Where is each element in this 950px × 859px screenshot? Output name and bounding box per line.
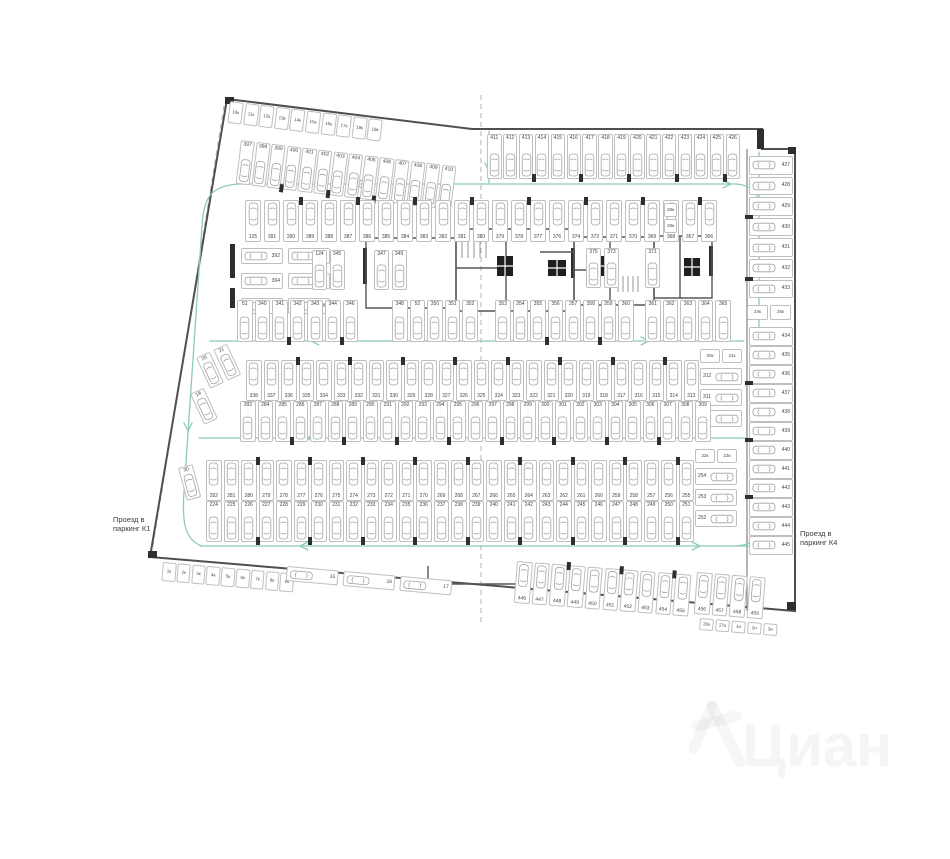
column-marker	[657, 437, 661, 445]
column-marker	[340, 337, 344, 345]
stall-number: 15к	[309, 120, 316, 125]
stall-number: 228	[280, 503, 288, 508]
car-icon	[528, 362, 539, 386]
stall-layer: 10к11к12к13к14к15к16к17к18к19к3973983994…	[0, 0, 950, 859]
stall-number: 409	[429, 165, 438, 171]
car-icon	[700, 316, 711, 340]
car-icon	[616, 153, 627, 177]
parking-stall: 124	[312, 250, 327, 290]
storage-stall: 27к	[715, 619, 730, 632]
car-icon	[429, 316, 440, 340]
parking-stall: 285	[275, 401, 291, 442]
car-icon	[641, 573, 654, 598]
parking-stall: 296	[468, 401, 484, 442]
car-icon	[557, 416, 568, 440]
stall-number: 317	[617, 394, 625, 399]
stall-number: 276	[315, 494, 323, 499]
column-marker	[571, 457, 575, 465]
car-icon	[208, 516, 219, 540]
stall-number: 21к	[729, 354, 736, 359]
car-icon	[476, 362, 487, 386]
stall-number: 291	[384, 403, 392, 408]
parking-stall: 229	[294, 501, 310, 542]
stall-number: 424	[697, 136, 705, 141]
stall-number: 360	[622, 302, 630, 307]
parking-stall: 243	[539, 501, 555, 542]
stall-number: 420	[633, 136, 641, 141]
storage-stall: 8к	[265, 571, 280, 591]
stall-number: 10к	[232, 110, 239, 115]
stall-number: 256	[665, 494, 673, 499]
stall-number: 372	[591, 235, 599, 240]
car-icon	[628, 462, 639, 486]
parking-stall: 371	[645, 248, 660, 288]
car-icon	[628, 202, 639, 226]
storage-stall: 11к	[243, 103, 260, 127]
car-icon	[752, 445, 776, 455]
stall-number: 451	[606, 603, 615, 609]
stall-number: 224	[210, 503, 218, 508]
stall-number: 313	[687, 394, 695, 399]
stall-number: 454	[659, 607, 668, 613]
parking-stall: 268	[451, 460, 467, 501]
car-icon	[348, 462, 359, 486]
stall-number: 229	[297, 503, 305, 508]
parking-stall: 379	[492, 200, 508, 242]
stall-number: 28к	[667, 208, 674, 213]
parking-stall: 284	[258, 401, 274, 442]
column-marker	[527, 197, 531, 205]
parking-stall: 371	[606, 200, 622, 242]
car-icon	[487, 416, 498, 440]
parking-stall: 352	[462, 300, 478, 342]
stall-number: 288	[331, 403, 339, 408]
stall-number: 379	[496, 235, 504, 240]
car-icon	[330, 416, 341, 440]
parking-stall: 282	[206, 460, 222, 501]
column-marker	[518, 457, 522, 465]
driveway-label-k1: Проезд в паркинг К1	[113, 515, 177, 534]
parking-stall: 327	[439, 360, 455, 401]
car-icon	[633, 362, 644, 386]
car-icon	[584, 153, 595, 177]
column-marker	[611, 357, 615, 365]
stall-number: 259	[612, 494, 620, 499]
car-icon	[401, 462, 412, 486]
parking-stall: 416	[567, 134, 582, 179]
stall-number: 456	[697, 607, 706, 613]
column-marker	[500, 437, 504, 445]
car-icon	[457, 202, 468, 226]
stall-number: 232	[350, 503, 358, 508]
car-icon	[610, 416, 621, 440]
parking-stall: 452	[620, 569, 639, 612]
car-icon	[598, 362, 609, 386]
car-icon	[686, 362, 697, 386]
column-marker	[745, 495, 753, 499]
stall-number: 298	[506, 403, 514, 408]
stall-number: 22к	[702, 454, 709, 459]
car-icon	[681, 516, 692, 540]
car-icon	[248, 362, 259, 386]
parking-stall: 340	[255, 300, 271, 342]
car-icon	[226, 516, 237, 540]
car-icon	[488, 516, 499, 540]
stall-number: 377	[534, 235, 542, 240]
parking-stall: 367	[682, 200, 698, 242]
stall-number: 303	[594, 403, 602, 408]
stall-number: 279	[262, 494, 270, 499]
stall-number: 437	[782, 391, 790, 396]
parking-stall: 278	[276, 460, 292, 501]
stall-number: 405	[367, 158, 376, 164]
car-icon	[682, 316, 693, 340]
stall-number: 371	[648, 250, 656, 255]
car-icon	[366, 516, 377, 540]
parking-stall: 273	[364, 460, 380, 501]
stall-number: 12к	[263, 114, 270, 119]
car-icon	[383, 516, 394, 540]
stall-number: 457	[715, 609, 724, 615]
stall-number: 389	[306, 235, 314, 240]
stall-number: 422	[665, 136, 673, 141]
parking-stall: 244	[556, 501, 572, 542]
car-icon	[575, 416, 586, 440]
stall-number: 244	[560, 503, 568, 508]
parking-stall: 361	[645, 300, 661, 342]
stall-number: 433	[782, 286, 790, 291]
car-icon	[704, 202, 715, 226]
stall-number: 24к	[754, 310, 761, 315]
stall-number: 348	[396, 302, 404, 307]
stall-number: 343	[311, 302, 319, 307]
stall-number: 432	[782, 266, 790, 271]
car-icon	[362, 202, 373, 226]
car-icon	[620, 316, 631, 340]
car-icon	[752, 243, 776, 253]
parking-stall: 231	[329, 501, 345, 542]
stall-number: 400	[289, 148, 298, 154]
parking-stall: 324	[491, 360, 507, 401]
car-icon	[394, 264, 405, 288]
parking-stall: 236	[416, 501, 432, 542]
parking-stall: 347	[374, 250, 389, 290]
column-marker	[623, 457, 627, 465]
parking-stall: 249	[644, 501, 660, 542]
car-icon	[394, 316, 405, 340]
stall-number: 442	[782, 486, 790, 491]
stall-number: 349	[395, 252, 403, 257]
parking-stall: 305	[625, 401, 641, 442]
car-icon	[441, 362, 452, 386]
stall-number: 458	[733, 610, 742, 616]
parking-stall: 346	[343, 300, 359, 342]
parking-stall: 373	[604, 248, 619, 288]
car-icon	[365, 416, 376, 440]
stall-number: 290	[366, 403, 374, 408]
column-marker	[356, 197, 360, 205]
car-icon	[752, 483, 776, 493]
column-marker	[308, 457, 312, 465]
car-icon	[715, 414, 739, 424]
parking-stall: 250	[661, 501, 677, 542]
stall-number: 369	[648, 235, 656, 240]
stall-number: 294	[436, 403, 444, 408]
car-icon	[750, 578, 763, 603]
stall-number: 309	[699, 403, 707, 408]
storage-stall: 25к	[770, 305, 791, 320]
stall-number: 245	[577, 503, 585, 508]
stall-number: 361	[649, 302, 657, 307]
stall-number: 26к	[703, 622, 710, 627]
parking-stall: 431	[749, 238, 793, 257]
stall-number: 258	[630, 494, 638, 499]
stall-number: 436	[782, 372, 790, 377]
parking-floor-plan: Циан	[0, 0, 950, 859]
car-icon	[283, 362, 294, 386]
parking-stall: 435	[749, 346, 793, 365]
car-icon	[563, 362, 574, 386]
parking-stall: 437	[749, 384, 793, 403]
car-icon	[552, 202, 563, 226]
column-marker	[623, 537, 627, 545]
stall-number: 293	[419, 403, 427, 408]
parking-stall: 389	[302, 200, 318, 242]
car-icon	[752, 426, 776, 436]
car-icon	[552, 153, 563, 177]
car-icon	[330, 169, 344, 194]
parking-stall: 277	[294, 460, 310, 501]
car-icon	[647, 316, 658, 340]
storage-stall: 24к	[747, 305, 768, 320]
parking-stall: 374	[568, 200, 584, 242]
parking-stall: 413	[519, 134, 534, 179]
stall-number: 394	[272, 279, 280, 284]
stall-number: 344	[329, 302, 337, 307]
stall-number: 252	[698, 516, 706, 521]
car-icon	[331, 462, 342, 486]
car-icon	[257, 316, 268, 340]
stall-number: 434	[782, 334, 790, 339]
parking-stall: 451	[602, 568, 621, 611]
parking-stall: 281	[224, 460, 240, 501]
stall-number: 255	[682, 494, 690, 499]
car-icon	[588, 569, 601, 594]
parking-stall: 312	[700, 368, 742, 385]
parking-stall: 290	[363, 401, 379, 442]
car-icon	[419, 202, 430, 226]
stall-number: 320	[565, 394, 573, 399]
stall-number: 16	[386, 580, 392, 585]
parking-stall: 299	[520, 401, 536, 442]
stall-number: 330	[390, 394, 398, 399]
car-icon	[284, 164, 298, 189]
car-icon	[546, 362, 557, 386]
parking-stall: 286	[293, 401, 309, 442]
parking-stall: 382	[435, 200, 451, 242]
stall-number: 340	[258, 302, 266, 307]
column-marker	[745, 438, 753, 442]
car-icon	[752, 263, 776, 273]
parking-stall: 455	[673, 573, 692, 616]
parking-stall: 445	[749, 536, 793, 555]
car-icon	[402, 579, 427, 591]
storage-stall: 3н	[763, 623, 778, 636]
parking-stall: 415	[551, 134, 566, 179]
stall-number: 51	[242, 302, 248, 307]
stall-number: 7к	[255, 577, 260, 582]
storage-stall: 13к	[274, 107, 291, 131]
column-marker	[287, 337, 291, 345]
parking-stall: 423	[678, 134, 693, 179]
stall-number: 13к	[278, 116, 285, 121]
car-icon	[345, 316, 356, 340]
stall-number: 272	[385, 494, 393, 499]
parking-stall: 358	[583, 300, 599, 342]
stall-number: 410	[444, 167, 453, 173]
car-icon	[195, 396, 215, 422]
stall-number: 297	[489, 403, 497, 408]
stall-number: 312	[703, 374, 711, 379]
parking-stall: 369	[644, 200, 660, 242]
car-icon	[752, 222, 776, 232]
parking-stall: 345	[330, 250, 345, 290]
stall-number: 124	[315, 252, 323, 257]
car-icon	[752, 181, 776, 191]
stall-number: 374	[572, 235, 580, 240]
stall-number: 253	[698, 495, 706, 500]
car-icon	[382, 416, 393, 440]
car-icon	[453, 462, 464, 486]
parking-stall: 448	[549, 564, 568, 607]
stall-number: 324	[495, 394, 503, 399]
parking-stall: 444	[749, 517, 793, 536]
stall-number: 384	[401, 235, 409, 240]
parking-stall: 298	[503, 401, 519, 442]
parking-stall: 357	[565, 300, 581, 342]
storage-stall: 2к	[176, 563, 191, 583]
column-marker	[571, 537, 575, 545]
parking-stall: 420	[630, 134, 645, 179]
stall-number: 302	[576, 403, 584, 408]
stall-number: 254	[698, 474, 706, 479]
column-marker	[745, 381, 753, 385]
stall-number: 453	[641, 606, 650, 612]
parking-stall: 320	[561, 360, 577, 401]
stall-number: 345	[333, 252, 341, 257]
car-icon	[521, 153, 532, 177]
column-marker	[447, 437, 451, 445]
car-icon	[253, 160, 267, 185]
storage-stall: 23к	[717, 449, 737, 463]
parking-stall: 338	[246, 360, 262, 401]
stall-number: 404	[351, 156, 360, 162]
column-marker	[698, 197, 702, 205]
parking-stall: 241	[504, 501, 520, 542]
stall-number: 338	[250, 394, 258, 399]
car-icon	[243, 516, 254, 540]
car-icon	[593, 516, 604, 540]
car-icon	[558, 462, 569, 486]
column-marker	[342, 437, 346, 445]
parking-stall: 447	[531, 562, 550, 605]
car-icon	[346, 171, 360, 196]
parking-stall: 294	[433, 401, 449, 442]
stall-number: 286	[296, 403, 304, 408]
column-marker	[619, 566, 624, 574]
stall-number: 373	[607, 250, 615, 255]
stall-number: 370	[629, 235, 637, 240]
car-icon	[239, 316, 250, 340]
stall-number: 346	[346, 302, 354, 307]
column-marker	[627, 174, 631, 182]
stall-number: 408	[413, 163, 422, 169]
parking-stall: 258	[626, 460, 642, 501]
car-icon	[506, 462, 517, 486]
parking-stall: 318	[596, 360, 612, 401]
parking-stall: 283	[240, 401, 256, 442]
stall-number: 20к	[707, 354, 714, 359]
stall-number: 371	[610, 235, 618, 240]
column-marker	[348, 357, 352, 365]
parking-stall: 306	[643, 401, 659, 442]
stall-number: 1к	[166, 570, 171, 575]
car-icon	[646, 516, 657, 540]
parking-stall: 253	[695, 489, 737, 506]
parking-stall: 259	[609, 460, 625, 501]
parking-stall: 364	[698, 300, 714, 342]
car-icon	[201, 360, 221, 386]
stall-number: 306	[646, 403, 654, 408]
column-marker	[466, 457, 470, 465]
column-marker	[290, 437, 294, 445]
car-icon	[278, 516, 289, 540]
stall-number: 283	[244, 403, 252, 408]
car-icon	[523, 516, 534, 540]
stall-number: 450	[588, 602, 597, 608]
stall-number: 307	[664, 403, 672, 408]
parking-stall: 315	[649, 360, 665, 401]
car-icon	[511, 362, 522, 386]
stall-number: 314	[670, 394, 678, 399]
car-icon	[296, 516, 307, 540]
column-marker	[584, 197, 588, 205]
parking-stall: 414	[535, 134, 550, 179]
parking-stall: 329	[404, 360, 420, 401]
car-icon	[558, 516, 569, 540]
car-icon	[218, 352, 238, 378]
stall-number: 387	[344, 235, 352, 240]
column-marker	[470, 197, 474, 205]
stall-number: 415	[554, 136, 562, 141]
car-icon	[514, 202, 525, 226]
column-marker	[745, 215, 753, 219]
car-icon	[752, 331, 776, 341]
stall-number: 423	[681, 136, 689, 141]
stall-number: 401	[305, 150, 314, 156]
stall-number: 18к	[356, 125, 363, 130]
parking-stall: 279	[259, 460, 275, 501]
parking-stall: 459	[747, 576, 766, 619]
parking-stall: 442	[749, 479, 793, 498]
car-icon	[593, 462, 604, 486]
stall-number: 418	[601, 136, 609, 141]
parking-stall: 417	[582, 134, 597, 179]
car-icon	[497, 316, 508, 340]
column-marker	[672, 570, 677, 578]
stall-number: 397	[243, 142, 252, 148]
car-icon	[376, 264, 387, 288]
